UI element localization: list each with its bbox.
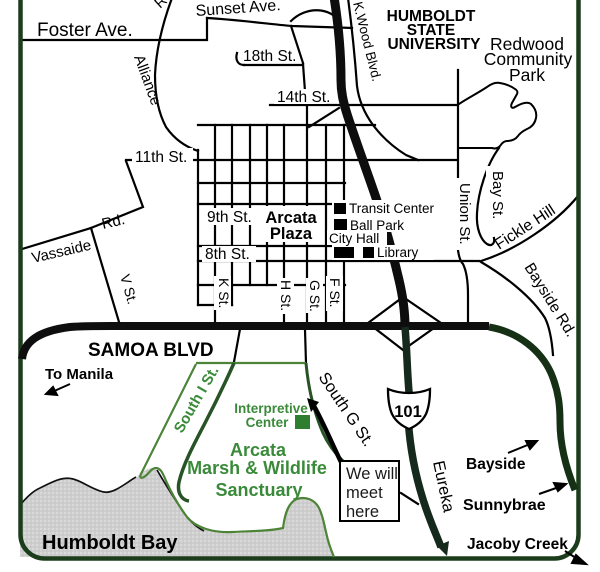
svg-text:Library: Library bbox=[377, 245, 419, 260]
svg-text:G St.: G St. bbox=[307, 280, 323, 312]
svg-text:11th St.: 11th St. bbox=[135, 149, 187, 166]
svg-text:H St.: H St. bbox=[278, 280, 294, 311]
svg-text:Union St.: Union St. bbox=[456, 183, 473, 245]
svg-text:City Hall: City Hall bbox=[329, 231, 379, 246]
svg-text:Humboldt Bay: Humboldt Bay bbox=[42, 532, 178, 554]
svg-text:Bay St.: Bay St. bbox=[489, 171, 506, 219]
svg-text:Arcata: Arcata bbox=[230, 440, 287, 460]
svg-text:Transit Center: Transit Center bbox=[349, 201, 435, 216]
svg-text:Center: Center bbox=[246, 415, 290, 430]
svg-text:Foster Ave.: Foster Ave. bbox=[37, 20, 133, 41]
svg-text:Jacoby Creek: Jacoby Creek bbox=[467, 536, 568, 553]
svg-text:To Manila: To Manila bbox=[45, 366, 114, 383]
svg-text:F St.: F St. bbox=[327, 278, 343, 308]
svg-text:We will: We will bbox=[346, 465, 398, 483]
svg-text:meet: meet bbox=[346, 484, 383, 502]
svg-text:9th St.: 9th St. bbox=[207, 209, 252, 226]
svg-text:14th St.: 14th St. bbox=[277, 89, 330, 106]
svg-text:here: here bbox=[346, 503, 379, 521]
svg-text:Sunnybrae: Sunnybrae bbox=[463, 497, 546, 514]
svg-text:101: 101 bbox=[394, 403, 422, 421]
svg-text:UNIVERSITY: UNIVERSITY bbox=[387, 36, 481, 53]
svg-text:8th St.: 8th St. bbox=[205, 246, 250, 263]
svg-text:SAMOA BLVD: SAMOA BLVD bbox=[88, 340, 214, 361]
svg-text:Park: Park bbox=[509, 65, 545, 85]
svg-text:Plaza: Plaza bbox=[270, 225, 313, 243]
svg-text:Marsh & Wildlife: Marsh & Wildlife bbox=[187, 458, 327, 478]
svg-text:Interpretive: Interpretive bbox=[234, 401, 308, 416]
svg-text:Sanctuary: Sanctuary bbox=[215, 480, 302, 500]
svg-text:K St.: K St. bbox=[216, 278, 232, 308]
svg-text:18th St.: 18th St. bbox=[243, 48, 296, 65]
svg-text:Bayside: Bayside bbox=[466, 456, 526, 473]
